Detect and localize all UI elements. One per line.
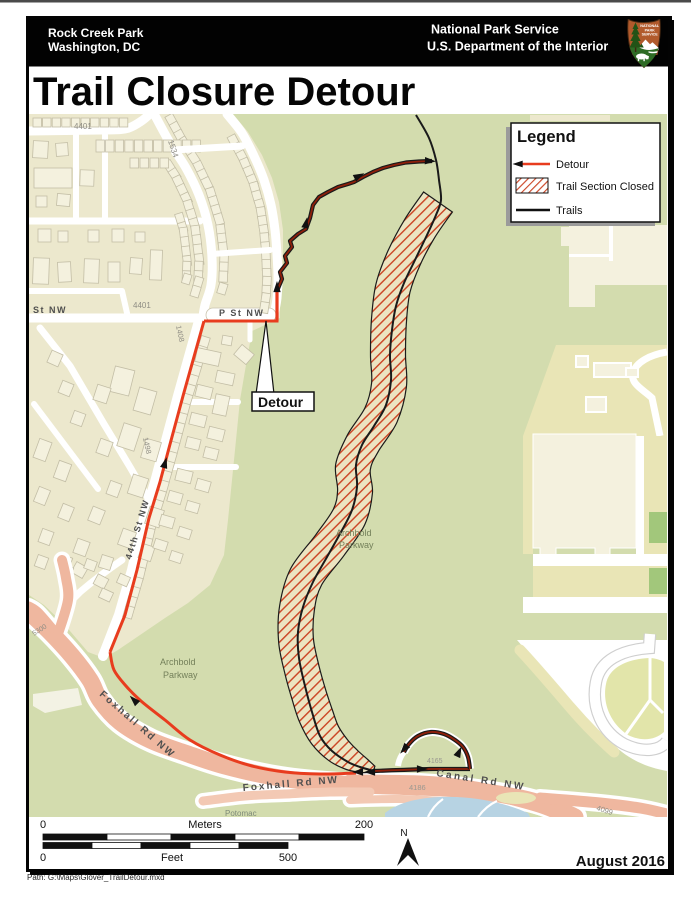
svg-text:Detour: Detour — [258, 394, 304, 410]
svg-text:Trail Section Closed: Trail Section Closed — [556, 181, 654, 193]
svg-text:4186: 4186 — [409, 783, 426, 792]
svg-text:St NW: St NW — [33, 305, 67, 315]
svg-text:0: 0 — [40, 819, 46, 831]
svg-text:Archbold: Archbold — [160, 657, 196, 667]
svg-text:500: 500 — [279, 852, 297, 864]
svg-text:Path: G:\Maps\Glover_TrailDeto: Path: G:\Maps\Glover_TrailDetour.mxd — [27, 873, 165, 882]
svg-text:4401: 4401 — [74, 122, 92, 131]
svg-text:Washington, DC: Washington, DC — [48, 40, 141, 54]
svg-text:Rock Creek Park: Rock Creek Park — [48, 26, 144, 40]
svg-text:U.S. Department of the Interio: U.S. Department of the Interior — [427, 40, 608, 54]
svg-text:Detour: Detour — [556, 159, 589, 171]
svg-text:200: 200 — [355, 819, 373, 831]
svg-text:0: 0 — [40, 852, 46, 864]
svg-text:N: N — [400, 828, 407, 839]
svg-text:Parkway: Parkway — [163, 670, 198, 680]
svg-text:Potomac: Potomac — [225, 809, 257, 818]
svg-text:Archbold: Archbold — [336, 528, 372, 538]
svg-text:Parkway: Parkway — [339, 540, 374, 550]
svg-text:Trail Closure Detour: Trail Closure Detour — [33, 70, 415, 114]
svg-text:Legend: Legend — [517, 128, 576, 146]
svg-text:Meters: Meters — [188, 819, 222, 831]
svg-text:August 2016: August 2016 — [576, 853, 665, 870]
svg-text:National Park Service: National Park Service — [431, 23, 559, 37]
svg-text:Feet: Feet — [161, 852, 183, 864]
svg-text:SERVICE: SERVICE — [642, 33, 659, 37]
svg-text:Trails: Trails — [556, 205, 583, 217]
svg-text:4165: 4165 — [427, 758, 443, 765]
svg-text:P St NW: P St NW — [219, 308, 264, 318]
svg-text:4401: 4401 — [133, 301, 151, 310]
